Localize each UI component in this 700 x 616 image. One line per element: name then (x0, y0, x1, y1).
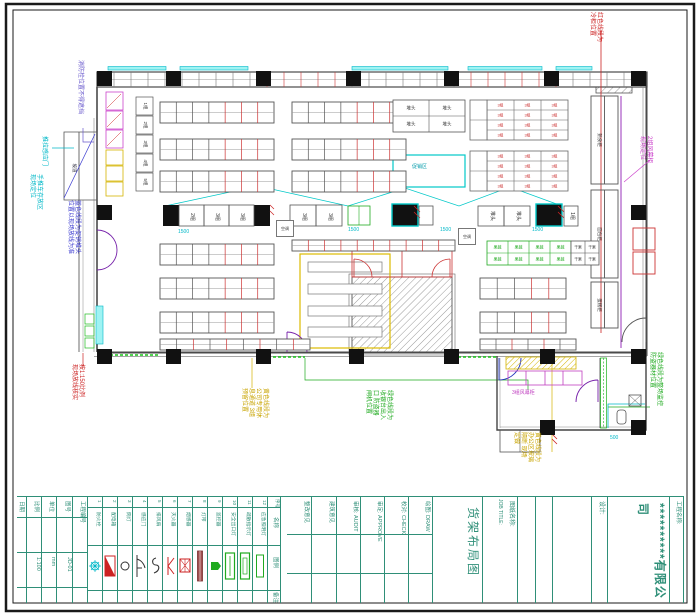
legend-num: 7 (178, 500, 192, 503)
divider (208, 590, 222, 591)
svg-text:3组: 3组 (525, 103, 531, 108)
divider (103, 545, 117, 546)
svg-text:3组: 3组 (552, 123, 558, 128)
svg-text:3组: 3组 (552, 154, 558, 159)
shelf-run (160, 339, 310, 350)
company-name: **********有限公司 (608, 503, 669, 603)
divider (163, 590, 177, 591)
table-grid (470, 100, 487, 140)
legend-name: 应急照明灯 (253, 512, 267, 536)
divider (118, 590, 132, 591)
divider (223, 545, 237, 546)
info-col-2: 单位mm (42, 497, 57, 603)
svg-text:3组: 3组 (552, 174, 558, 179)
divider (88, 507, 102, 508)
empty-col-2 (536, 497, 553, 603)
legend-no-label: 序号 (268, 499, 280, 508)
drawing-title: 货架布局图 (440, 507, 482, 577)
divider (238, 507, 252, 508)
legend-name: 安全出口灯 (223, 512, 237, 536)
legend-num: 11 (238, 500, 252, 505)
table-grid: 3组3组3组3组3组3组3组3组3组3组3组3组 (487, 151, 568, 191)
legend-col-3: 4感应门 (133, 497, 148, 603)
field-col-5: 绘图: DRAW (409, 497, 433, 603)
svg-text:3组: 3组 (525, 174, 531, 179)
divider (88, 545, 102, 546)
divider (223, 590, 237, 591)
svg-text:3组: 3组 (525, 113, 531, 118)
svg-text:1组: 1组 (569, 212, 576, 220)
svg-text:3组: 3组 (552, 113, 558, 118)
shelf-run (160, 244, 274, 265)
field-col-0: 整改意见 (287, 497, 312, 603)
divider (268, 590, 280, 591)
table-grid: 3组3组3组3组3组3组3组3组3组3组3组3组 (487, 100, 568, 140)
divider (27, 587, 41, 588)
svg-text:果蔬: 果蔬 (515, 256, 523, 262)
shelf-run (480, 339, 576, 350)
legend-name: 排风扇 (148, 512, 162, 526)
divider (17, 552, 26, 553)
legend-symbol-11 (253, 547, 267, 587)
shelf-run (292, 240, 455, 251)
company-col: **********有限公司 (608, 497, 670, 603)
svg-text:3组: 3组 (525, 184, 531, 189)
divider (193, 545, 207, 546)
legend-name: 烟感器 (178, 512, 192, 526)
divider (42, 517, 56, 518)
divider (287, 534, 311, 535)
svg-text:3组: 3组 (525, 154, 531, 159)
shelf-run (480, 278, 566, 299)
ac-box-1: 空调 (276, 220, 294, 237)
annotation-hydrant-note: 消防栓位置不得遮挡 (76, 60, 83, 114)
info-label: 图号 (57, 501, 72, 512)
field-label: 审核: AUDIT (337, 501, 360, 532)
shelf-run (160, 312, 274, 333)
dimension-1500-c: 1500 (440, 227, 451, 233)
svg-text:3组: 3组 (498, 113, 504, 118)
divider (148, 545, 162, 546)
dimension-500: 500 (610, 435, 618, 441)
divider (163, 507, 177, 508)
legend-symbol-0 (88, 547, 102, 587)
divider (133, 590, 147, 591)
svg-text:3组: 3组 (327, 213, 334, 221)
title-block: 日期比例1:100单位mm图号JD-01工程编号1防火栓2配电箱3筒灯4感应门5… (17, 496, 684, 603)
empty-col-3 (553, 497, 592, 603)
annotation-cart-note: 手推车存放区现场定位 (28, 174, 42, 210)
legend-col-11: 12应急照明灯 (253, 497, 268, 603)
svg-text:3组: 3组 (498, 164, 504, 169)
legend-symbol-3 (133, 547, 147, 587)
legend-header: 序号名称图例备注 (268, 497, 281, 603)
info-value: JD-01 (57, 557, 72, 572)
shelf-run (160, 171, 274, 192)
table-grid (470, 151, 487, 191)
legend-name: 感应门 (133, 512, 147, 526)
svg-text:2组: 2组 (143, 121, 149, 129)
field-label: 校对: CHECK (385, 501, 408, 534)
svg-text:果蔬: 果蔬 (515, 244, 523, 250)
divider (253, 545, 267, 546)
legend-num: 8 (193, 500, 207, 503)
legend-col-0: 1防火栓 (88, 497, 103, 603)
shelf-run (292, 171, 406, 192)
svg-text:堆头: 堆头 (515, 211, 522, 221)
divider (27, 552, 41, 553)
field-label: 审定: APPROVE (361, 501, 384, 542)
legend-symbol-8 (208, 547, 222, 587)
shelf-run (160, 102, 274, 123)
legend-name: 配电箱 (103, 512, 117, 526)
legend-name: 监控器 (208, 512, 222, 526)
annotation-green-note-1: 绿色线段为收银台出入口 防盗器闸机位置 (364, 390, 392, 420)
legend-col-1: 2配电箱 (103, 497, 118, 603)
annotation-door-note: 推拉感应门 (40, 136, 47, 166)
legend-num: 5 (148, 500, 162, 503)
svg-text:3组: 3组 (525, 133, 531, 138)
ac-box-2: 空调 (458, 228, 476, 245)
legend-symbol-10 (238, 547, 252, 587)
info-value: mm (42, 557, 56, 566)
svg-text:3组: 3组 (143, 140, 149, 148)
divider (178, 507, 192, 508)
svg-text:3组: 3组 (214, 213, 221, 221)
design-label: 设计: (592, 501, 607, 515)
table-grid: 堆头堆头堆头堆头 (393, 100, 465, 132)
divider (57, 517, 72, 518)
divider (73, 552, 87, 553)
divider (118, 507, 132, 508)
legend-num: 4 (133, 500, 147, 503)
divider (57, 587, 72, 588)
info-label: 日期 (17, 501, 26, 512)
legend-symbol-4 (148, 547, 162, 587)
info-col-4: 工程编号 (73, 497, 88, 603)
annotation-green-note-2: 绿色线段为整场监控防盗器材位置 (648, 352, 662, 406)
info-col-3: 图号JD-01 (57, 497, 73, 603)
svg-text:堆头: 堆头 (407, 105, 416, 112)
legend-symbol-6 (178, 547, 192, 587)
divider (193, 507, 207, 508)
divider (253, 507, 267, 508)
svg-text:3组: 3组 (239, 213, 246, 221)
field-col-4: 校对: CHECK (385, 497, 409, 603)
divider (178, 590, 192, 591)
project-name-col: 工程名称: (670, 497, 684, 603)
svg-text:3组: 3组 (498, 123, 504, 128)
info-label: 单位 (42, 501, 56, 512)
legend-name: 灭火器 (163, 512, 177, 526)
legend-col-2: 3筒灯 (118, 497, 133, 603)
info-col-1: 比例1:100 (27, 497, 42, 603)
svg-text:熟食柜: 熟食柜 (596, 133, 603, 147)
field-label: 建筑意见 (312, 501, 336, 523)
svg-text:5组: 5组 (143, 178, 149, 186)
svg-text:干果: 干果 (574, 257, 582, 262)
annotation-yellow-note-1: 黄色线段为公司专用休息通道 3组预留位置 (240, 388, 268, 418)
svg-text:果蔬: 果蔬 (494, 256, 502, 262)
svg-text:1组: 1组 (143, 102, 149, 110)
divider (57, 552, 72, 553)
svg-text:4组: 4组 (143, 159, 149, 167)
legend-num: 2 (103, 500, 117, 503)
svg-text:3组: 3组 (498, 154, 504, 159)
svg-text:干果: 干果 (574, 245, 582, 250)
legend-symbol-5 (163, 547, 177, 587)
legend-col-8: 9监控器 (208, 497, 223, 603)
annotation-blue-note: 蓝色线段为促销堆头位置以现场放线为准 (66, 200, 80, 254)
divider (42, 587, 56, 588)
legend-num: 9 (208, 500, 222, 503)
divider (193, 590, 207, 591)
legend-remark-label: 备注 (268, 592, 280, 603)
divider (42, 552, 56, 553)
drawing-title-label-col: 图纸名称:JOB TITLE: (483, 497, 518, 603)
divider (133, 507, 147, 508)
divider (409, 534, 432, 535)
divider (385, 573, 408, 574)
divider (238, 590, 252, 591)
divider (253, 590, 267, 591)
ac-label: 空调 (463, 234, 471, 240)
dimension-1500-a: 1500 (178, 229, 189, 235)
field-col-3: 审定: APPROVE (361, 497, 385, 603)
divider (312, 534, 336, 535)
dimension-1500-d: 1500 (532, 227, 543, 233)
field-col-2: 审核: AUDIT (337, 497, 361, 603)
svg-text:3组: 3组 (552, 184, 558, 189)
svg-text:3组: 3组 (525, 164, 531, 169)
legend-name: 灯带 (193, 512, 207, 522)
info-col-0: 日期 (17, 497, 27, 603)
svg-text:蛋糕柜: 蛋糕柜 (596, 298, 603, 312)
divider (118, 545, 132, 546)
divider (337, 534, 360, 535)
legend-name-label: 名称 (268, 517, 280, 528)
svg-text:3组: 3组 (525, 123, 531, 128)
shelf-run (160, 278, 274, 299)
field-col-1: 建筑意见 (312, 497, 337, 603)
divider (208, 507, 222, 508)
svg-text:3组: 3组 (498, 174, 504, 179)
divider (178, 545, 192, 546)
table-grid: 干果干果干果干果 (571, 241, 599, 265)
svg-text:果蔬: 果蔬 (536, 244, 544, 250)
legend-symbol-9 (223, 547, 237, 587)
project-name-label: 工程名称: (670, 501, 683, 525)
divider (17, 587, 26, 588)
legend-name: 筒灯 (118, 512, 132, 522)
svg-text:3组: 3组 (552, 164, 558, 169)
info-label: 工程编号 (73, 501, 87, 523)
divider (238, 545, 252, 546)
divider (148, 507, 162, 508)
shelf-run (160, 139, 274, 160)
divider (103, 590, 117, 591)
divider (17, 517, 26, 518)
field-label: 整改意见 (287, 501, 311, 523)
legend-symbol-7 (193, 547, 207, 587)
divider (27, 517, 41, 518)
svg-text:3组: 3组 (552, 133, 558, 138)
divider (268, 545, 280, 546)
legend-num: 1 (88, 500, 102, 503)
svg-text:干果: 干果 (588, 245, 596, 250)
legend-symbol-1 (103, 547, 117, 587)
legend-num: 6 (163, 500, 177, 503)
svg-text:3组: 3组 (301, 213, 308, 221)
svg-text:果蔬: 果蔬 (536, 256, 544, 262)
legend-col-9: 10安全出口灯 (223, 497, 238, 603)
svg-text:3组: 3组 (498, 103, 504, 108)
divider (409, 573, 432, 574)
svg-text:果蔬: 果蔬 (494, 244, 502, 250)
annotation-red-note-top: 红色线段为冷柜位置 (588, 12, 602, 42)
divider (208, 545, 222, 546)
svg-text:3组: 3组 (498, 133, 504, 138)
svg-text:堆头: 堆头 (443, 121, 452, 128)
freezer-label: 3组风幕柜 (512, 389, 535, 396)
annotation-scale-note: 按1:150比例现场放线核实 (70, 364, 84, 400)
legend-col-6: 7烟感器 (178, 497, 193, 603)
svg-text:3组: 3组 (498, 184, 504, 189)
legend-col-4: 5排风扇 (148, 497, 163, 603)
legend-name: 疏散指示灯 (238, 512, 252, 536)
divider (312, 573, 336, 574)
legend-name: 防火栓 (88, 512, 102, 526)
empty-col-1 (518, 497, 536, 603)
svg-text:干果: 干果 (588, 257, 596, 262)
svg-text:堆头: 堆头 (489, 211, 496, 221)
legend-col-7: 8灯带 (193, 497, 208, 603)
legend-num: 3 (118, 500, 132, 503)
svg-text:3组: 3组 (552, 103, 558, 108)
divider (223, 507, 237, 508)
shelf-run (480, 312, 566, 333)
svg-text:果蔬: 果蔬 (557, 256, 565, 262)
legend-num: 10 (223, 500, 237, 505)
drawing-sheet: ＊＊＊＊＊ (0, 0, 700, 616)
ac-label: 空调 (281, 226, 289, 232)
svg-text:堆头: 堆头 (407, 121, 416, 128)
svg-text:面包柜: 面包柜 (596, 227, 603, 241)
field-label: 绘图: DRAW (409, 501, 432, 532)
legend-col-5: 6灭火器 (163, 497, 178, 603)
divider (88, 590, 102, 591)
svg-text:促销区: 促销区 (412, 163, 427, 170)
shelf-run (292, 139, 406, 160)
divider (361, 573, 384, 574)
divider (103, 507, 117, 508)
shelf-run (292, 102, 406, 123)
drawing-name-label: 图纸名称: (483, 501, 517, 527)
info-label: 比例 (27, 501, 41, 512)
svg-text:坡道: 坡道 (71, 164, 78, 173)
annotation-yellow-note-2: 黄色线段为办公区玻璃隔断 现场定做 (512, 432, 540, 462)
divider (287, 573, 311, 574)
svg-text:2组: 2组 (189, 213, 196, 221)
annotation-magenta-note: 2组风幕柜现场定位 (638, 136, 652, 163)
design-col: 设计: (592, 497, 608, 603)
divider (73, 587, 87, 588)
legend-symbol-label: 图例 (268, 557, 280, 568)
info-value: 1:100 (27, 557, 41, 571)
legend-num: 12 (253, 500, 267, 505)
dimension-1500-b: 1500 (348, 227, 359, 233)
drawing-title-col: 货架布局图 (440, 497, 483, 603)
legend-col-10: 11疏散指示灯 (238, 497, 253, 603)
divider (148, 590, 162, 591)
legend-symbol-2 (118, 547, 132, 587)
divider (133, 545, 147, 546)
table-grid: 果蔬果蔬果蔬果蔬果蔬果蔬果蔬果蔬 (487, 241, 571, 265)
divider (163, 545, 177, 546)
svg-text:堆头: 堆头 (443, 105, 452, 112)
svg-text:果蔬: 果蔬 (557, 244, 565, 250)
divider (337, 573, 360, 574)
